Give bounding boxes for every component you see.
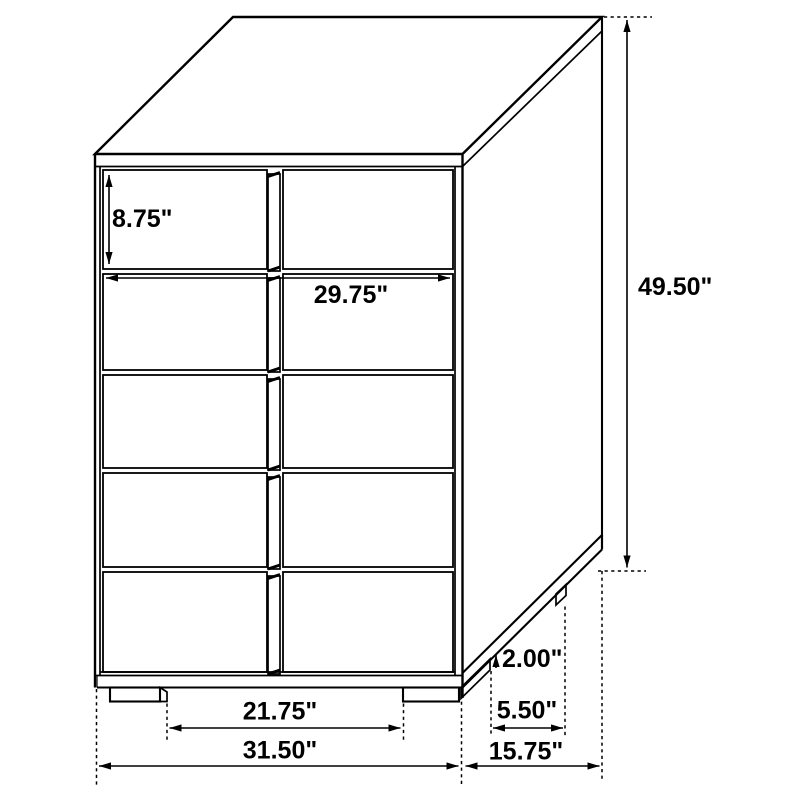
- diagram-canvas: 8.75" 29.75" 49.50" 2.00" 5.50" 21.75": [0, 0, 800, 800]
- dimension-overall-depth: 15.75": [466, 738, 600, 767]
- drawer-face-right-5: [283, 572, 453, 672]
- front-left-foot-side: [160, 688, 167, 702]
- dimension-label-base-height: 2.00": [502, 645, 563, 673]
- dimension-drawer-width: 29.75": [106, 278, 450, 309]
- drawer-grid: [103, 170, 453, 674]
- drawer-face-left-3: [103, 375, 267, 468]
- dimension-side-foot-inset: 5.50": [493, 697, 563, 729]
- drawer-face-right-3: [283, 375, 453, 468]
- drawer-handle-2: [268, 277, 280, 373]
- top-surface: [95, 17, 602, 154]
- drawer-face-right-4: [283, 473, 453, 567]
- chest-structure: [95, 17, 602, 702]
- dimension-label-overall-height: 49.50": [638, 273, 712, 301]
- drawer-handle-3: [268, 378, 280, 471]
- drawer-face-left-4: [103, 473, 267, 567]
- dimension-annotations: 8.75" 29.75" 49.50" 2.00" 5.50" 21.75": [97, 17, 713, 785]
- dimension-base-height: 2.00": [496, 645, 563, 673]
- drawer-handle-4: [268, 476, 280, 570]
- front-left-foot: [110, 688, 160, 702]
- dimension-drawer-height: 8.75": [109, 175, 173, 264]
- dimension-front-foot-span: 21.75": [170, 698, 401, 729]
- top-edge-side-thickness: [463, 31, 603, 167]
- drawer-handle-1: [268, 173, 280, 272]
- dimension-label-overall-depth: 15.75": [489, 738, 563, 766]
- furniture-dimension-diagram: 8.75" 29.75" 49.50" 2.00" 5.50" 21.75": [0, 0, 800, 800]
- drawer-face-left-5: [103, 572, 267, 672]
- front-right-foot: [403, 688, 459, 702]
- dimension-label-front-foot-span: 21.75": [243, 698, 317, 726]
- dimension-label-drawer-height: 8.75": [112, 205, 173, 233]
- dimension-label-overall-width: 31.50": [243, 737, 317, 765]
- dimension-label-drawer-width: 29.75": [314, 281, 388, 309]
- drawer-face-right-1: [283, 170, 453, 269]
- extension-lines: [97, 17, 653, 785]
- drawer-face-left-2: [103, 274, 267, 370]
- dimension-label-side-foot-inset: 5.50": [497, 697, 558, 725]
- dimension-overall-width: 31.50": [99, 737, 459, 767]
- dimension-overall-height: 49.50": [627, 20, 712, 568]
- drawer-handle-5: [268, 575, 280, 675]
